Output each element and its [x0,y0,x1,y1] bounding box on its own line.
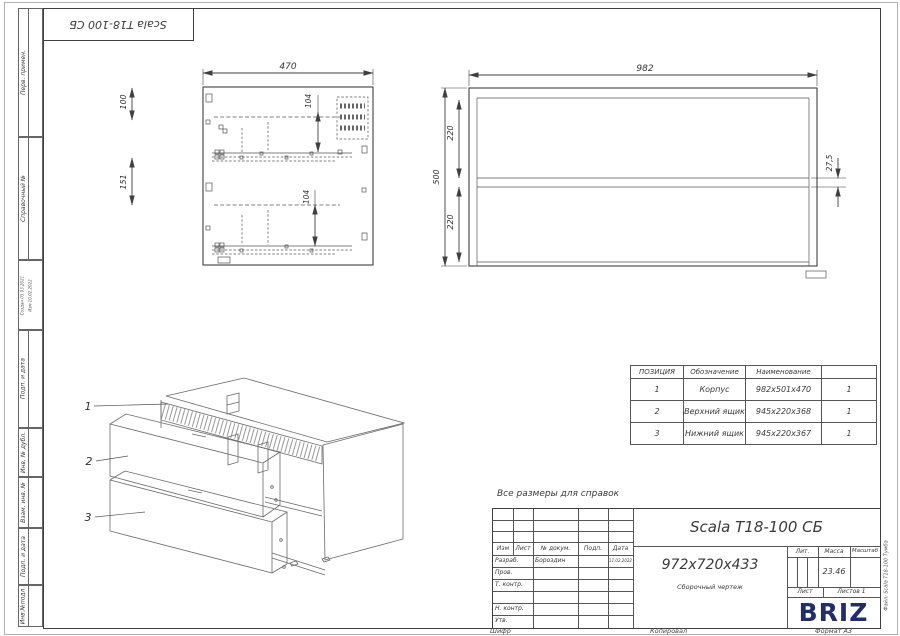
pos-3-label: 3 [85,511,92,524]
overall-dimensions: 972х720х433 [633,551,787,579]
dim-151-label: 151 [119,174,128,189]
parts-header-name: Наименование [746,366,822,379]
part-size: 945х220х367 [746,423,822,445]
table-row: 3 Нижний ящик 945х220х367 1 [631,423,877,445]
col-date: Дата [608,542,633,555]
document-type: Сборочный чертеж [633,581,787,593]
mass-label: Масса [818,546,850,557]
dim-220-bottom-label: 220 [446,214,455,229]
pos-1-label: 1 [85,400,92,413]
front-view: 982 500 220 220 27,5 [432,64,846,278]
dim-104-top-label: 104 [304,94,313,109]
dim-500-label: 500 [432,169,441,184]
title-block: Изм Лист № докум. Подп. Дата Разраб. Бор… [492,508,881,629]
row-checked: Пров. [495,567,533,579]
part-name: Корпус [684,379,746,401]
table-row: 2 Верхний ящик 945х220х368 1 [631,401,877,423]
reference-note: Все размеры для справок [497,489,619,499]
document-title: Scala T18-100 СБ [633,509,880,546]
parts-header-position: ПОЗИЦИЯ [631,366,684,379]
part-qty: 1 [822,401,877,423]
side-view: 470 100 151 [119,62,373,265]
parts-header-qty [822,366,877,379]
iso-view: 1 2 3 [85,378,405,575]
sheets-label: Листов 1 [823,587,880,597]
part-size: 982х501х470 [746,379,822,401]
part-pos: 2 [631,401,684,423]
dim-470-label: 470 [279,62,296,72]
col-doc: № докум. [533,542,578,555]
dim-982-label: 982 [636,64,653,74]
lit-label: Лит. [787,546,818,557]
parts-table-header-row: ПОЗИЦИЯ Обозначение Наименование [631,366,877,379]
cipher-label: Шифр [490,627,511,635]
row-developed: Разраб. [495,555,533,567]
briz-logo: BRIZ [787,597,880,628]
dim-100-label: 100 [119,94,128,109]
mass-value: 23.46 [818,557,850,587]
part-qty: 1 [822,423,877,445]
sheet-label: Лист [787,587,823,597]
format-label: Формат А3 [815,627,852,635]
dim-104-bottom-label: 104 [302,190,311,205]
part-size: 945х220х368 [746,401,822,423]
developer-name: Бороздин [535,555,577,567]
row-approved: Утв. [495,615,533,627]
pos-2-label: 2 [86,455,93,468]
row-t-control: Т. контр. [495,579,533,591]
row-n-control: Н. контр. [495,603,533,615]
developer-date: 11.02.2022 [608,555,633,567]
table-row: 1 Корпус 982х501х470 1 [631,379,877,401]
part-pos: 1 [631,379,684,401]
dim-27-5-label: 27,5 [825,154,834,171]
copied-label: Копировал [650,627,687,635]
parts-header-designation: Обозначение [684,366,746,379]
dim-220-top-label: 220 [446,125,455,140]
col-izm: Изм [493,542,513,555]
part-qty: 1 [822,379,877,401]
drawing-sheet: Scala T18-100 СБ Перв. примен. Справочны… [0,0,900,636]
part-name: Верхний ящик [684,401,746,423]
parts-table: ПОЗИЦИЯ Обозначение Наименование 1 Корпу… [630,365,877,445]
part-pos: 3 [631,423,684,445]
part-name: Нижний ящик [684,423,746,445]
col-sign: Подп. [578,542,608,555]
scale-label: Масштаб [850,546,880,557]
col-list: Лист [513,542,533,555]
